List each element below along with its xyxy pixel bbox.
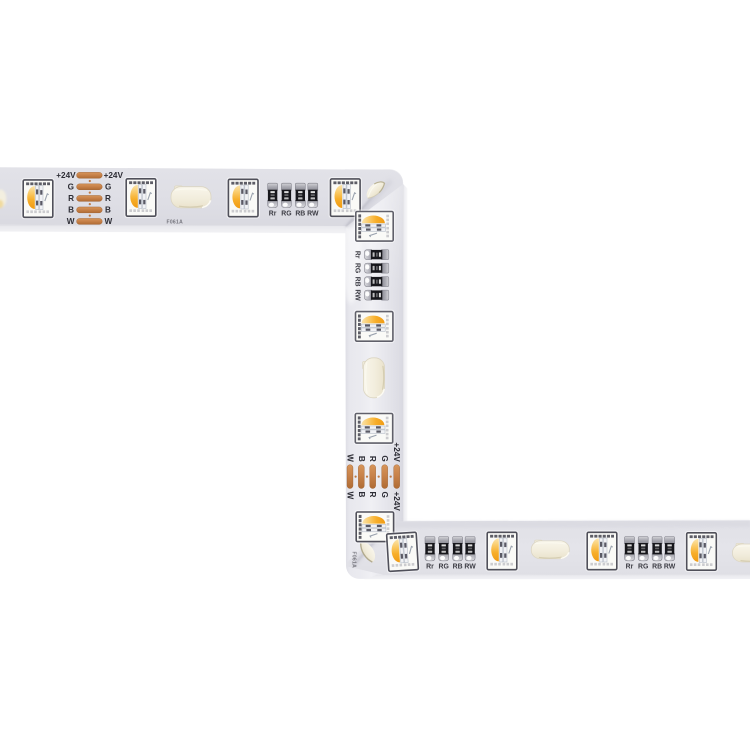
svg-text:RB: RB — [453, 563, 463, 570]
svg-text:RW: RW — [664, 563, 676, 570]
svg-text:F061A: F061A — [167, 219, 184, 225]
svg-text:G: G — [380, 455, 389, 461]
svg-text:B: B — [68, 205, 74, 214]
svg-text:W: W — [67, 217, 75, 226]
svg-text:W: W — [105, 217, 113, 226]
svg-text:W: W — [346, 454, 355, 462]
svg-text:Rr: Rr — [354, 251, 361, 259]
svg-text:RB: RB — [295, 210, 305, 217]
svg-text:G: G — [380, 492, 389, 498]
svg-text:RG: RG — [439, 563, 449, 570]
svg-text:R: R — [68, 194, 74, 203]
svg-text:+24V: +24V — [392, 492, 401, 512]
svg-text:RW: RW — [354, 289, 361, 301]
svg-text:R: R — [368, 456, 377, 462]
svg-text:+24V: +24V — [104, 171, 124, 180]
svg-text:RB: RB — [354, 277, 361, 287]
svg-text:Rr: Rr — [269, 210, 277, 217]
svg-text:RW: RW — [307, 210, 319, 217]
svg-text:RG: RG — [638, 563, 648, 570]
svg-text:RW: RW — [464, 563, 476, 570]
svg-text:RB: RB — [652, 563, 662, 570]
svg-text:RG: RG — [281, 210, 291, 217]
svg-text:B: B — [357, 456, 366, 462]
svg-text:F061A: F061A — [351, 552, 357, 569]
svg-text:G: G — [105, 182, 111, 191]
svg-text:B: B — [357, 492, 366, 498]
svg-text:Rr: Rr — [626, 563, 634, 570]
svg-text:R: R — [105, 194, 111, 203]
svg-text:+24V: +24V — [56, 171, 76, 180]
svg-text:RG: RG — [354, 263, 361, 273]
svg-text:R: R — [368, 492, 377, 498]
svg-text:B: B — [105, 205, 111, 214]
svg-text:G: G — [68, 182, 74, 191]
svg-text:W: W — [346, 492, 355, 500]
svg-text:Rr: Rr — [426, 563, 434, 570]
svg-text:+24V: +24V — [392, 442, 401, 462]
